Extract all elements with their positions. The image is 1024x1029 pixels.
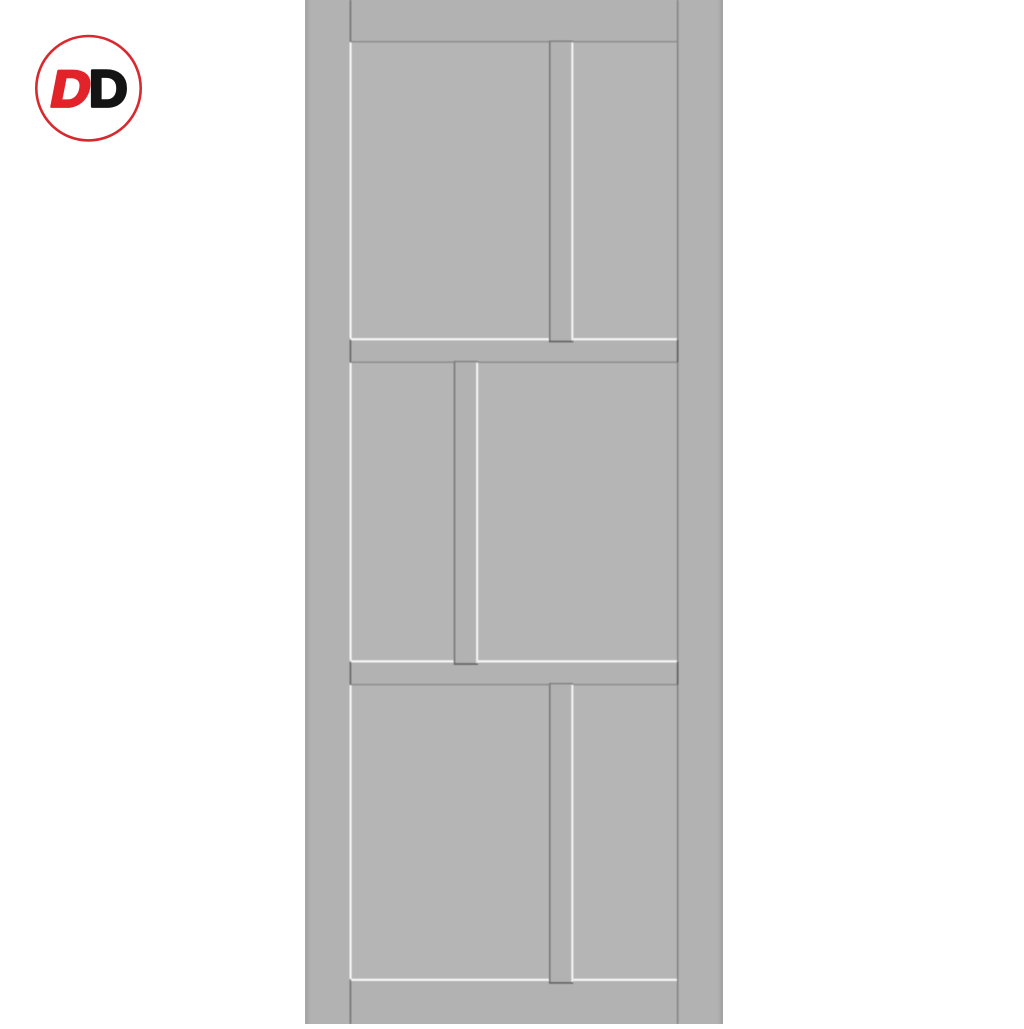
svg-text:D: D: [89, 61, 128, 119]
